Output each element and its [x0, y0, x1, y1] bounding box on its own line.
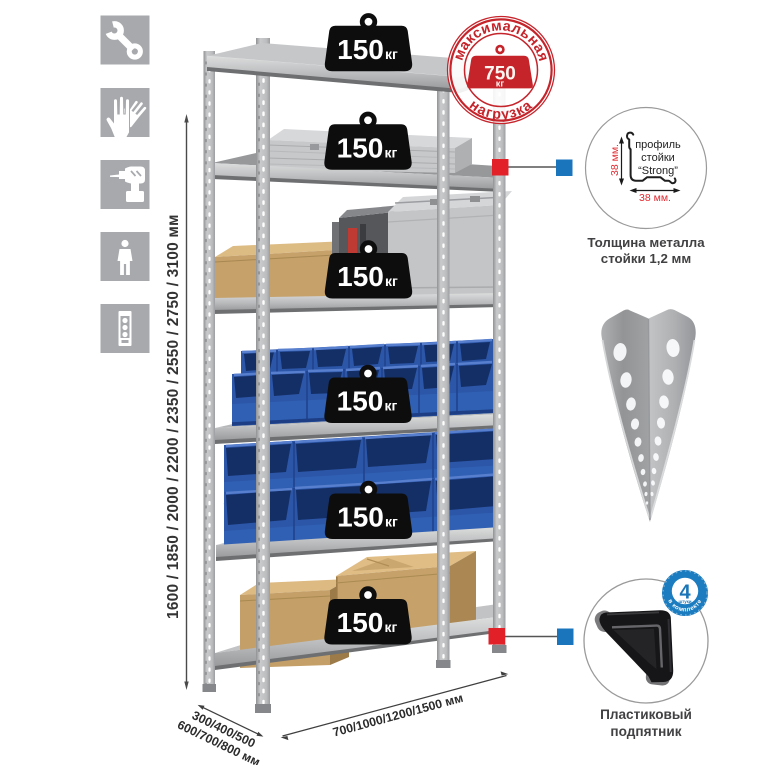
svg-text:Пластиковый: Пластиковый: [600, 707, 692, 722]
svg-text:1600 / 1850 / 2000 / 2200 / 23: 1600 / 1850 / 2000 / 2200 / 2350 / 2550 …: [165, 214, 182, 619]
svg-text:Толщина металла: Толщина металла: [587, 235, 705, 250]
svg-text:профиль: профиль: [635, 139, 681, 151]
svg-text:стойки: стойки: [641, 152, 675, 164]
svg-text:подпятник: подпятник: [610, 724, 681, 739]
svg-text:38 мм.: 38 мм.: [609, 144, 621, 176]
svg-text:38 мм.: 38 мм.: [639, 192, 671, 204]
svg-text:стойки 1,2 мм: стойки 1,2 мм: [601, 251, 691, 266]
svg-text:“Strong”: “Strong”: [638, 165, 678, 177]
svg-text:штуки: штуки: [679, 599, 692, 604]
svg-text:кг: кг: [496, 78, 505, 88]
svg-text:700/1000/1200/1500 мм: 700/1000/1200/1500 мм: [331, 691, 464, 740]
